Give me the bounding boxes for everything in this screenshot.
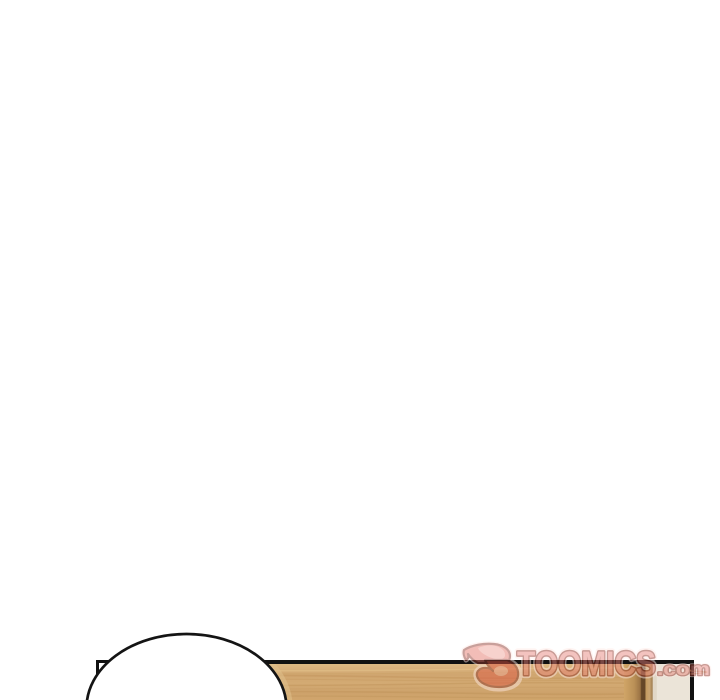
svg-text:TOOMICS: TOOMICS — [517, 645, 656, 683]
svg-text:.com: .com — [657, 659, 710, 679]
